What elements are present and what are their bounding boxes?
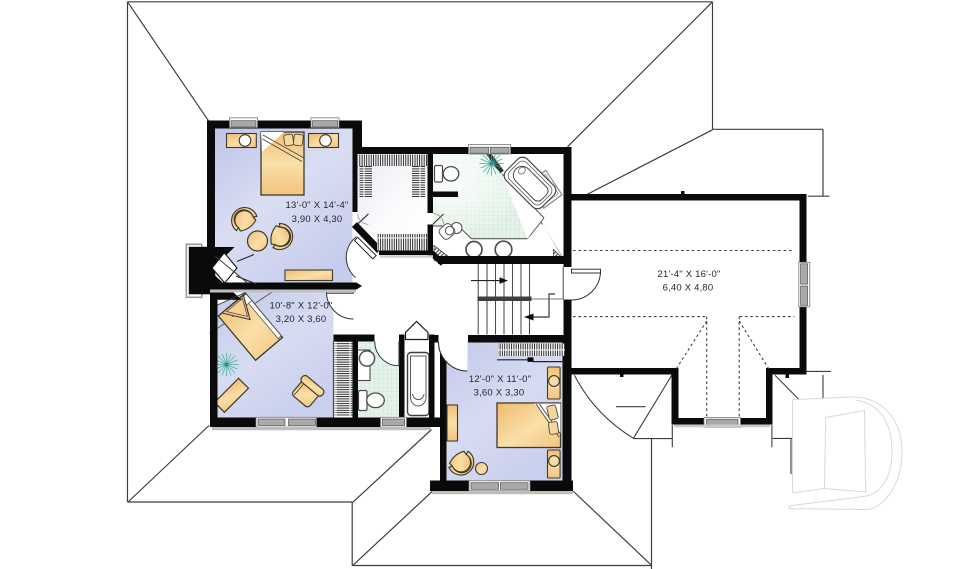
svg-text:3,90 X 4,30: 3,90 X 4,30 <box>292 214 343 225</box>
svg-text:10'-8" X 12'-0": 10'-8" X 12'-0" <box>269 301 332 312</box>
svg-text:3,60 X 3,30: 3,60 X 3,30 <box>474 388 525 399</box>
svg-text:3,20 X 3,60: 3,20 X 3,60 <box>276 314 327 325</box>
svg-text:6,40 X 4,80: 6,40 X 4,80 <box>663 282 714 293</box>
svg-text:13'-0" X 14'-4": 13'-0" X 14'-4" <box>285 200 348 211</box>
svg-text:12'-0" X 11'-0": 12'-0" X 11'-0" <box>469 374 531 385</box>
svg-text:21'-4" X 16'-0": 21'-4" X 16'-0" <box>657 269 720 280</box>
